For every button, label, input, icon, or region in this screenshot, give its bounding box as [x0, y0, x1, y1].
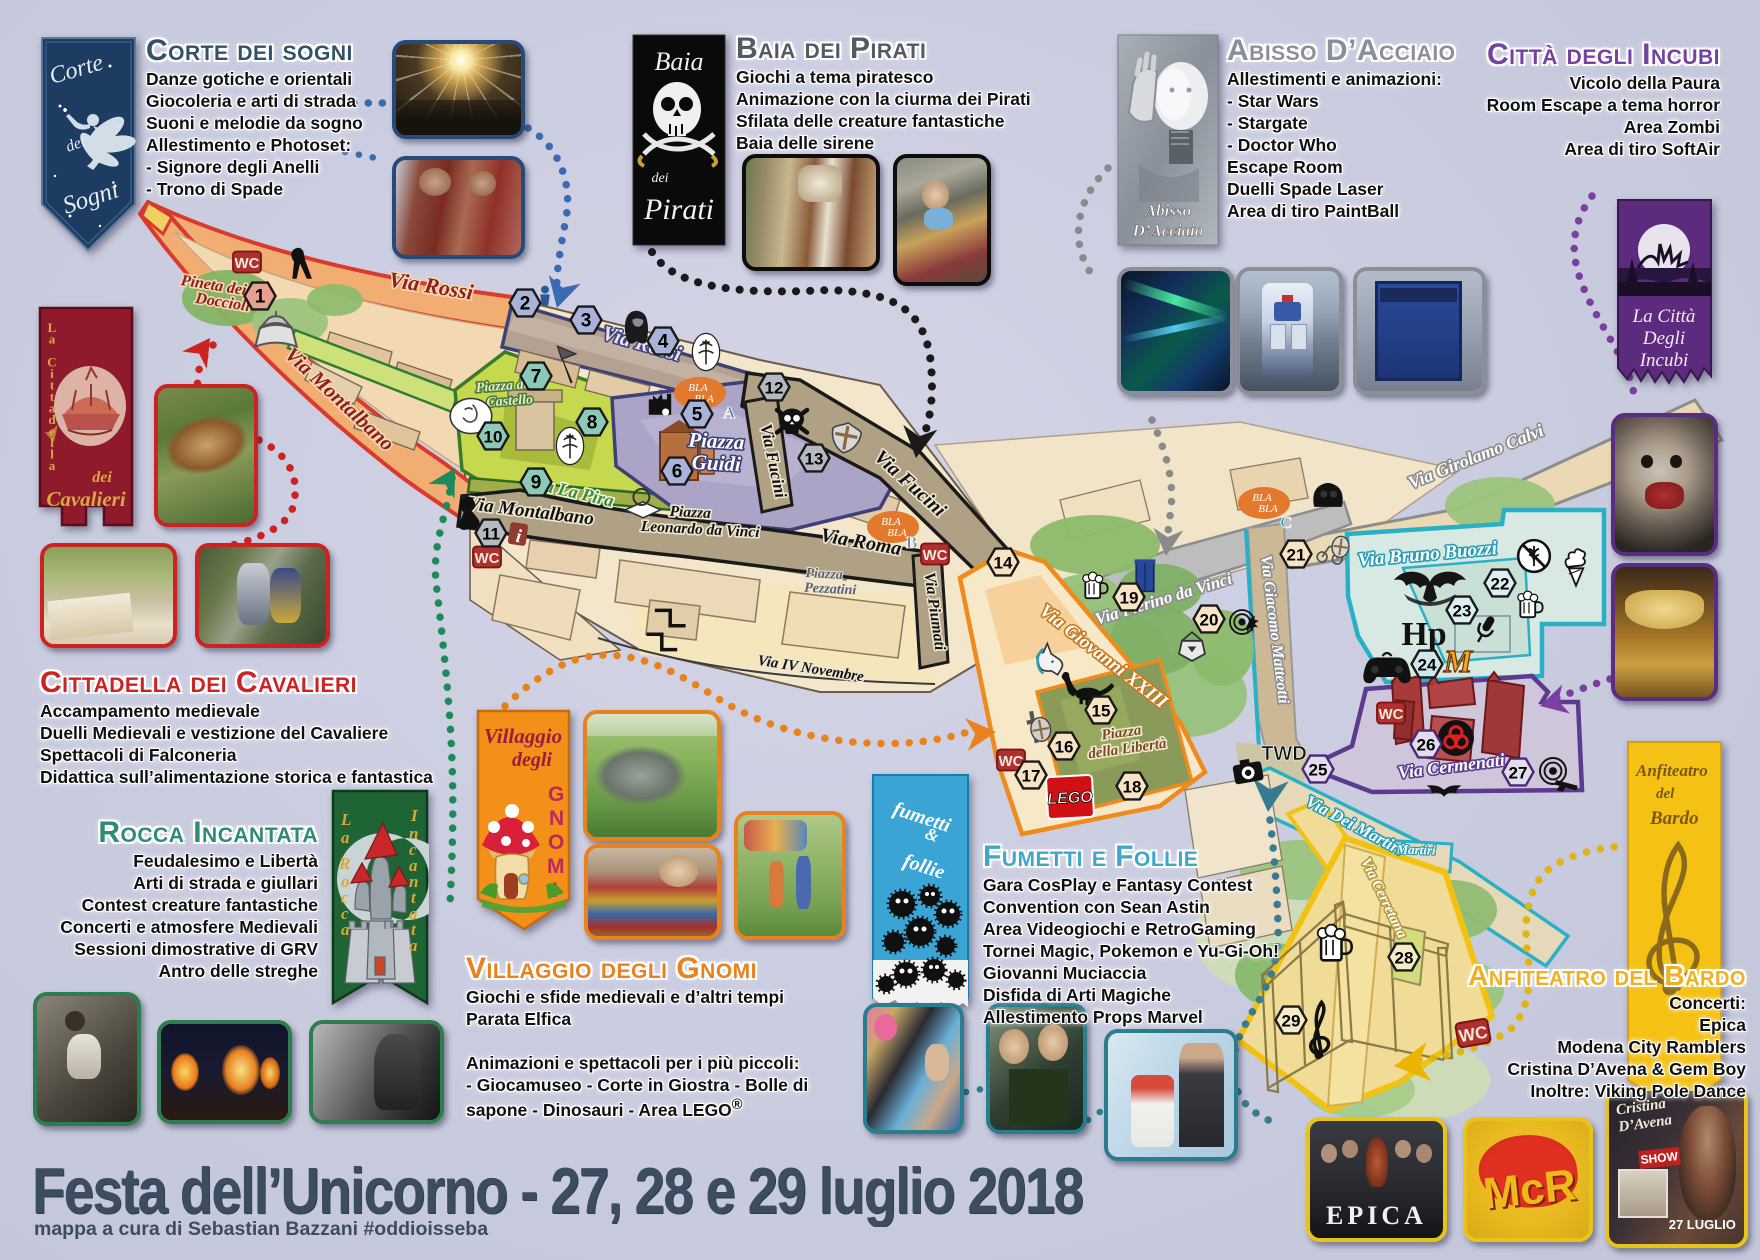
- svg-text:Anfiteatro: Anfiteatro: [1635, 761, 1708, 780]
- svg-text:25: 25: [1309, 761, 1328, 780]
- svg-text:23: 23: [1453, 602, 1472, 621]
- svg-text:9: 9: [531, 473, 542, 494]
- svg-text:Degli: Degli: [1642, 328, 1685, 349]
- svg-text:La Cittadella: La Cittadella: [45, 320, 60, 470]
- svg-text:Hp: Hp: [1401, 616, 1446, 653]
- svg-text:8: 8: [587, 413, 598, 434]
- svg-text:5: 5: [692, 405, 703, 426]
- svg-text:a: a: [409, 936, 418, 955]
- svg-text:dei: dei: [92, 469, 112, 486]
- svg-text:21: 21: [1287, 546, 1306, 565]
- svg-text:del: del: [1656, 786, 1675, 802]
- svg-text:28: 28: [1395, 949, 1414, 968]
- svg-text:Abisso: Abisso: [1144, 201, 1191, 220]
- svg-text:LEGO: LEGO: [1047, 789, 1094, 808]
- svg-text:Incubi: Incubi: [1639, 350, 1689, 371]
- svg-text:C: C: [1280, 513, 1292, 532]
- svg-text:M: M: [547, 855, 565, 878]
- svg-text:19: 19: [1120, 589, 1139, 608]
- svg-text:dei: dei: [651, 171, 668, 186]
- svg-text:26: 26: [1417, 736, 1436, 755]
- svg-text:B: B: [906, 533, 917, 552]
- svg-text:N: N: [549, 807, 564, 830]
- svg-text:WC: WC: [923, 547, 948, 564]
- svg-text:13: 13: [805, 450, 824, 469]
- svg-text:1: 1: [255, 287, 266, 308]
- svg-text:a: a: [341, 828, 350, 847]
- svg-text:11: 11: [482, 525, 500, 544]
- svg-text:Pezzatini: Pezzatini: [804, 581, 857, 599]
- svg-text:6: 6: [672, 462, 683, 483]
- svg-text:17: 17: [1022, 767, 1041, 786]
- svg-text:TWD: TWD: [1261, 743, 1307, 765]
- svg-text:La Città: La Città: [1632, 306, 1696, 327]
- svg-text:Guidi: Guidi: [691, 450, 741, 477]
- svg-text:Baia: Baia: [654, 47, 703, 76]
- svg-text:20: 20: [1200, 611, 1219, 630]
- svg-text:12: 12: [765, 379, 784, 398]
- svg-text:3: 3: [581, 311, 592, 332]
- svg-text:a: a: [341, 920, 350, 939]
- svg-text:27: 27: [1509, 764, 1528, 783]
- svg-text:14: 14: [994, 554, 1013, 573]
- svg-text:O: O: [548, 831, 564, 854]
- svg-text:degli: degli: [512, 749, 552, 771]
- svg-text:24: 24: [1418, 656, 1437, 675]
- svg-text:Cavalieri: Cavalieri: [46, 487, 125, 511]
- svg-text:22: 22: [1491, 575, 1510, 594]
- svg-text:4: 4: [658, 332, 669, 353]
- svg-text:M: M: [1443, 643, 1474, 679]
- svg-text:18: 18: [1123, 778, 1142, 797]
- svg-text:WC: WC: [235, 255, 260, 272]
- svg-text:15: 15: [1092, 702, 1111, 721]
- svg-text:Villaggio: Villaggio: [484, 724, 562, 748]
- svg-text:A: A: [723, 403, 736, 422]
- svg-text:10: 10: [484, 428, 503, 447]
- svg-text:WC: WC: [1379, 706, 1404, 723]
- svg-text:L: L: [340, 810, 351, 829]
- svg-text:16: 16: [1055, 738, 1074, 757]
- svg-text:R: R: [338, 854, 350, 873]
- svg-text:2: 2: [520, 294, 531, 315]
- svg-text:WC: WC: [475, 550, 500, 567]
- svg-text:Pirati: Pirati: [643, 193, 714, 226]
- svg-text:BLA: BLA: [887, 527, 907, 539]
- svg-text:Bardo: Bardo: [1649, 808, 1699, 829]
- svg-text:G: G: [548, 783, 564, 806]
- svg-text:BLA: BLA: [1258, 503, 1278, 515]
- svg-text:Martiri: Martiri: [1395, 841, 1436, 857]
- svg-text:7: 7: [531, 367, 542, 388]
- svg-text:D’Acciaio: D’Acciaio: [1132, 221, 1204, 240]
